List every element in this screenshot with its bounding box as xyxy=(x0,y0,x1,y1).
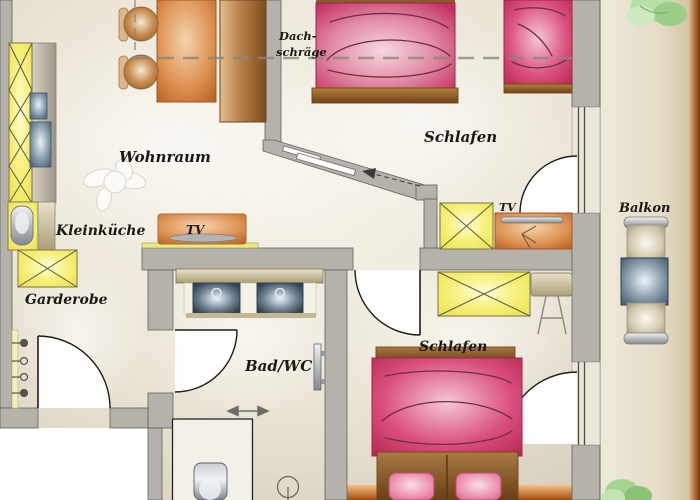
wall-passage-right xyxy=(424,199,437,249)
kitchen-sink-highlight xyxy=(15,212,29,234)
toilet-bowl xyxy=(199,478,221,500)
kitchen-sink-counter xyxy=(38,202,55,250)
balcony-furniture xyxy=(621,217,668,344)
balcony-table xyxy=(621,258,668,305)
label-kleinkueche: Kleinküche xyxy=(55,223,145,239)
bed2-single-mattress xyxy=(504,0,572,86)
balcony-chair-bottom xyxy=(627,303,665,336)
wall-center-band-left xyxy=(142,248,353,270)
dining-table xyxy=(157,0,216,102)
floorplan-drawing: Wohnraum Kleinküche Garderobe Schlafen B… xyxy=(0,0,700,500)
coat-rack-strip xyxy=(12,330,18,408)
wall-entrance-right xyxy=(110,408,148,428)
radiator-mount-1 xyxy=(321,351,326,356)
chair-seat xyxy=(531,273,572,296)
outside-area xyxy=(0,428,148,500)
label-tv-living: TV xyxy=(186,223,206,237)
tv-bar-bedroom xyxy=(501,217,563,223)
wall-jog xyxy=(416,185,437,200)
label-dachschraege-1: Dach- xyxy=(278,29,317,43)
bed3-pillow-left xyxy=(389,473,434,500)
wall-entrance-left xyxy=(0,408,38,428)
bed-single-top xyxy=(504,0,572,93)
bed3-mattress xyxy=(372,358,522,456)
wall-right-top xyxy=(572,0,600,107)
wardrobe-top xyxy=(440,203,493,249)
radiator xyxy=(314,344,321,390)
floorplan: Wohnraum Kleinküche Garderobe Schlafen B… xyxy=(0,0,700,500)
label-balkon: Balkon xyxy=(618,201,670,216)
wall-wohnraum-right xyxy=(265,0,281,143)
balcony-chair-bottom-rim xyxy=(624,333,668,344)
wall-bad-left-bottom xyxy=(148,428,162,500)
bed-double-top xyxy=(312,0,458,103)
label-schlafen-bottom: Schlafen xyxy=(419,339,487,355)
bed1-footboard xyxy=(312,88,458,103)
label-bad-wc: Bad/WC xyxy=(244,357,312,375)
label-tv-bedroom: TV xyxy=(499,201,517,214)
dining-chair-1 xyxy=(124,7,158,41)
label-dachschraege-2: schräge xyxy=(276,45,327,59)
kitchenette-unit xyxy=(8,43,56,250)
bathroom-sink-2 xyxy=(257,283,303,314)
vanity-counter-edge xyxy=(186,313,316,318)
label-garderobe: Garderobe xyxy=(25,292,108,308)
kitchen-appliance-small xyxy=(30,93,47,119)
kitchen-appliance-large xyxy=(30,122,51,167)
dining-chair-2 xyxy=(124,55,158,89)
wardrobe-bottom xyxy=(438,272,530,316)
balcony-edge-border xyxy=(688,0,700,500)
wall-bad-right xyxy=(325,270,347,500)
wall-right-middle xyxy=(572,213,600,362)
tv-bedroom-unit xyxy=(495,213,572,249)
bed-double-bottom xyxy=(372,347,522,500)
balcony-chair-top xyxy=(627,225,665,262)
bed3-pillow-right xyxy=(456,473,501,500)
label-wohnraum: Wohnraum xyxy=(119,148,211,166)
vanity-counter-bar xyxy=(176,269,323,283)
label-schlafen-top: Schlafen xyxy=(424,128,497,146)
radiator-mount-2 xyxy=(321,379,326,384)
wall-bad-left-lower xyxy=(148,393,173,428)
bathroom-sink-1 xyxy=(193,283,240,314)
dining-bench xyxy=(220,0,266,122)
wall-bad-left-upper xyxy=(148,270,173,330)
bed2-single-footboard xyxy=(504,84,572,93)
wall-right-bottom xyxy=(572,445,600,500)
